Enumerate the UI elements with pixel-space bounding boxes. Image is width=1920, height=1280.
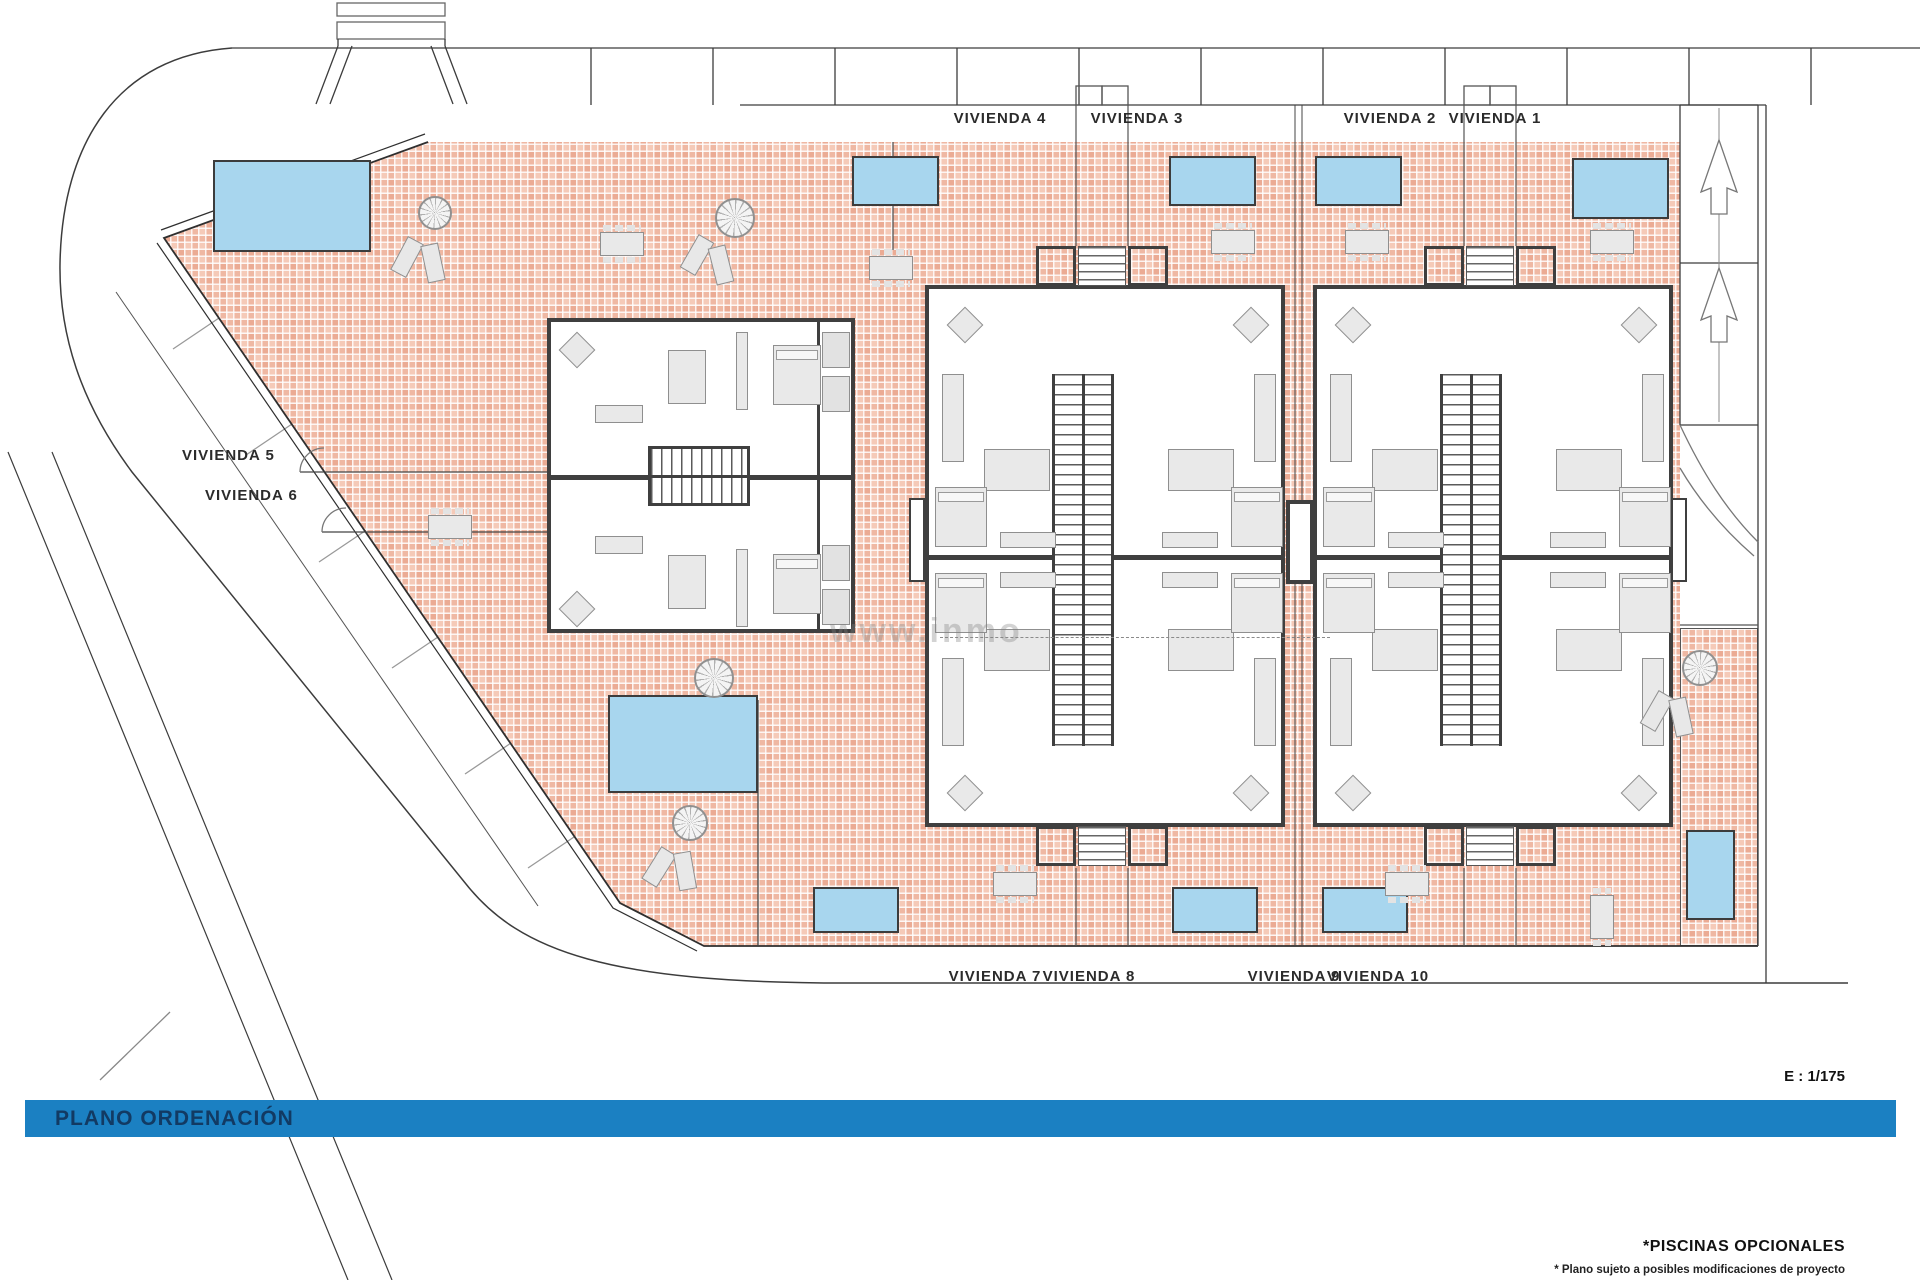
up-arrow-icon — [1701, 140, 1737, 214]
terrace-dining-set — [1590, 895, 1614, 939]
terrace-dining-set — [428, 515, 472, 539]
label-vivienda-8: VIVIENDA 8 — [1043, 968, 1136, 985]
dining-table — [1556, 449, 1622, 491]
entry-porch — [1036, 246, 1076, 286]
up-arrow-icon — [1701, 268, 1737, 342]
side-balcony — [1671, 498, 1687, 582]
entry-porch — [1128, 826, 1168, 866]
entry-porch — [1424, 826, 1464, 866]
dining-table — [984, 449, 1050, 491]
terrace-dining-set — [1211, 230, 1255, 254]
kitchen-counter — [1550, 532, 1606, 548]
central-connector — [1286, 500, 1314, 584]
bed — [1619, 487, 1671, 547]
pool — [608, 695, 758, 793]
plan-title: PLANO ORDENACIÓN — [25, 1107, 294, 1131]
spiral-stair — [672, 805, 708, 841]
entry-porch — [1516, 246, 1556, 286]
kitchen-counter — [1550, 572, 1606, 588]
building-viviendas-5-6 — [547, 318, 855, 633]
label-vivienda-7: VIVIENDA 7 — [949, 968, 1042, 985]
building-viviendas-4-3-7-8 — [925, 285, 1285, 827]
corner-plant — [1621, 775, 1658, 812]
entry-porch — [1424, 246, 1464, 286]
bed — [1231, 487, 1283, 547]
entry-steps — [1466, 826, 1514, 866]
bed — [1619, 573, 1671, 633]
staircase — [1052, 374, 1114, 746]
pool — [1315, 156, 1402, 206]
corner-plant — [947, 775, 984, 812]
corner-plant — [1335, 775, 1372, 812]
pool — [813, 887, 899, 933]
site-plan-canvas: www.inmo VIVIENDA 4 VIVIENDA 3 VIVIENDA … — [0, 0, 1920, 1280]
spiral-stair — [418, 196, 452, 230]
bed — [1323, 487, 1375, 547]
bathroom — [822, 332, 850, 368]
terrace-dining-set — [993, 872, 1037, 896]
dining-table — [1168, 449, 1234, 491]
scale-label: E : 1/175 — [1784, 1068, 1845, 1085]
pool — [852, 156, 939, 206]
pool — [1686, 830, 1735, 920]
dining-table — [1556, 629, 1622, 671]
sofa — [1254, 374, 1276, 462]
terrace-dining-set — [1385, 872, 1429, 896]
kitchen-counter — [736, 549, 748, 627]
pools-note: *PISCINAS OPCIONALES — [1643, 1238, 1845, 1256]
bed — [773, 554, 821, 614]
kitchen-counter — [1162, 532, 1218, 548]
dining-table — [1372, 629, 1438, 671]
label-vivienda-6: VIVIENDA 6 — [205, 487, 298, 504]
entry-steps — [1078, 826, 1126, 866]
staircase — [648, 446, 750, 506]
corner-plant — [1335, 307, 1372, 344]
disclaimer-note: * Plano sujeto a posibles modificaciones… — [1554, 1264, 1845, 1276]
dining-table — [1372, 449, 1438, 491]
terrace-dining-set — [1590, 230, 1634, 254]
label-vivienda-3: VIVIENDA 3 — [1091, 110, 1184, 127]
bed — [773, 345, 821, 405]
watermark: www.inmo — [830, 612, 1290, 651]
entry-porch — [1128, 246, 1168, 286]
corner-plant — [1233, 307, 1270, 344]
sofa — [942, 374, 964, 462]
entry-steps — [1078, 246, 1126, 286]
kitchen-counter — [1162, 572, 1218, 588]
entry-porch — [1036, 826, 1076, 866]
building-viviendas-2-1-9-10 — [1313, 285, 1673, 827]
spiral-stair — [694, 658, 734, 698]
entry-steps — [1466, 246, 1514, 286]
label-vivienda-1: VIVIENDA 1 — [1449, 110, 1542, 127]
spiral-stair — [715, 198, 755, 238]
sofa — [595, 536, 643, 554]
label-vivienda-2: VIVIENDA 2 — [1344, 110, 1437, 127]
terrace-dining-set — [600, 232, 644, 256]
terrace-dining-set — [869, 256, 913, 280]
label-vivienda-10: VIVIENDA 10 — [1327, 968, 1429, 985]
entry-porch — [1516, 826, 1556, 866]
terrace-dining-set — [1345, 230, 1389, 254]
kitchen-counter — [1000, 532, 1056, 548]
corner-plant — [559, 591, 596, 628]
pool — [1572, 158, 1669, 219]
spiral-stair — [1682, 650, 1718, 686]
kitchen-counter — [1000, 572, 1056, 588]
sofa — [1330, 374, 1352, 462]
corner-plant — [1621, 307, 1658, 344]
bathroom — [822, 376, 850, 412]
corner-plant — [559, 332, 596, 369]
sofa — [1642, 374, 1664, 462]
label-vivienda-4: VIVIENDA 4 — [954, 110, 1047, 127]
label-vivienda-5: VIVIENDA 5 — [182, 447, 275, 464]
kitchen-counter — [1388, 572, 1444, 588]
kitchen-counter — [1388, 532, 1444, 548]
bed — [935, 487, 987, 547]
corner-plant — [947, 307, 984, 344]
pool — [213, 160, 371, 252]
staircase — [1440, 374, 1502, 746]
sofa — [942, 658, 964, 746]
bathroom — [822, 545, 850, 581]
side-balcony — [909, 498, 925, 582]
pool — [1172, 887, 1258, 933]
pool — [1169, 156, 1256, 206]
bed — [1323, 573, 1375, 633]
dining-table — [668, 555, 706, 609]
corner-plant — [1233, 775, 1270, 812]
sofa — [1254, 658, 1276, 746]
sofa — [595, 405, 643, 423]
kitchen-counter — [736, 332, 748, 410]
sofa — [1330, 658, 1352, 746]
dining-table — [668, 350, 706, 404]
title-bar: PLANO ORDENACIÓN — [25, 1100, 1896, 1137]
